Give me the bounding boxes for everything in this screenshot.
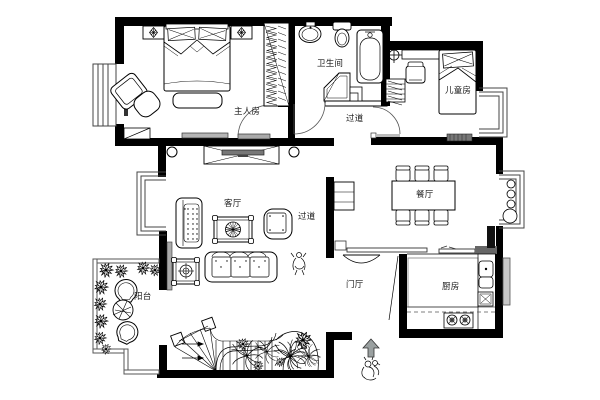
svg-text:厨房: 厨房 [442, 281, 459, 291]
svg-text:过道: 过道 [298, 211, 316, 221]
svg-text:客厅: 客厅 [224, 198, 242, 208]
svg-text:门厅: 门厅 [346, 279, 364, 289]
svg-text:餐厅: 餐厅 [416, 189, 434, 199]
svg-text:过道: 过道 [346, 113, 364, 123]
svg-text:主人房: 主人房 [234, 106, 260, 116]
svg-text:卫生间: 卫生间 [317, 58, 343, 68]
svg-text:儿童房: 儿童房 [445, 85, 471, 95]
svg-text:阳台: 阳台 [134, 291, 151, 301]
